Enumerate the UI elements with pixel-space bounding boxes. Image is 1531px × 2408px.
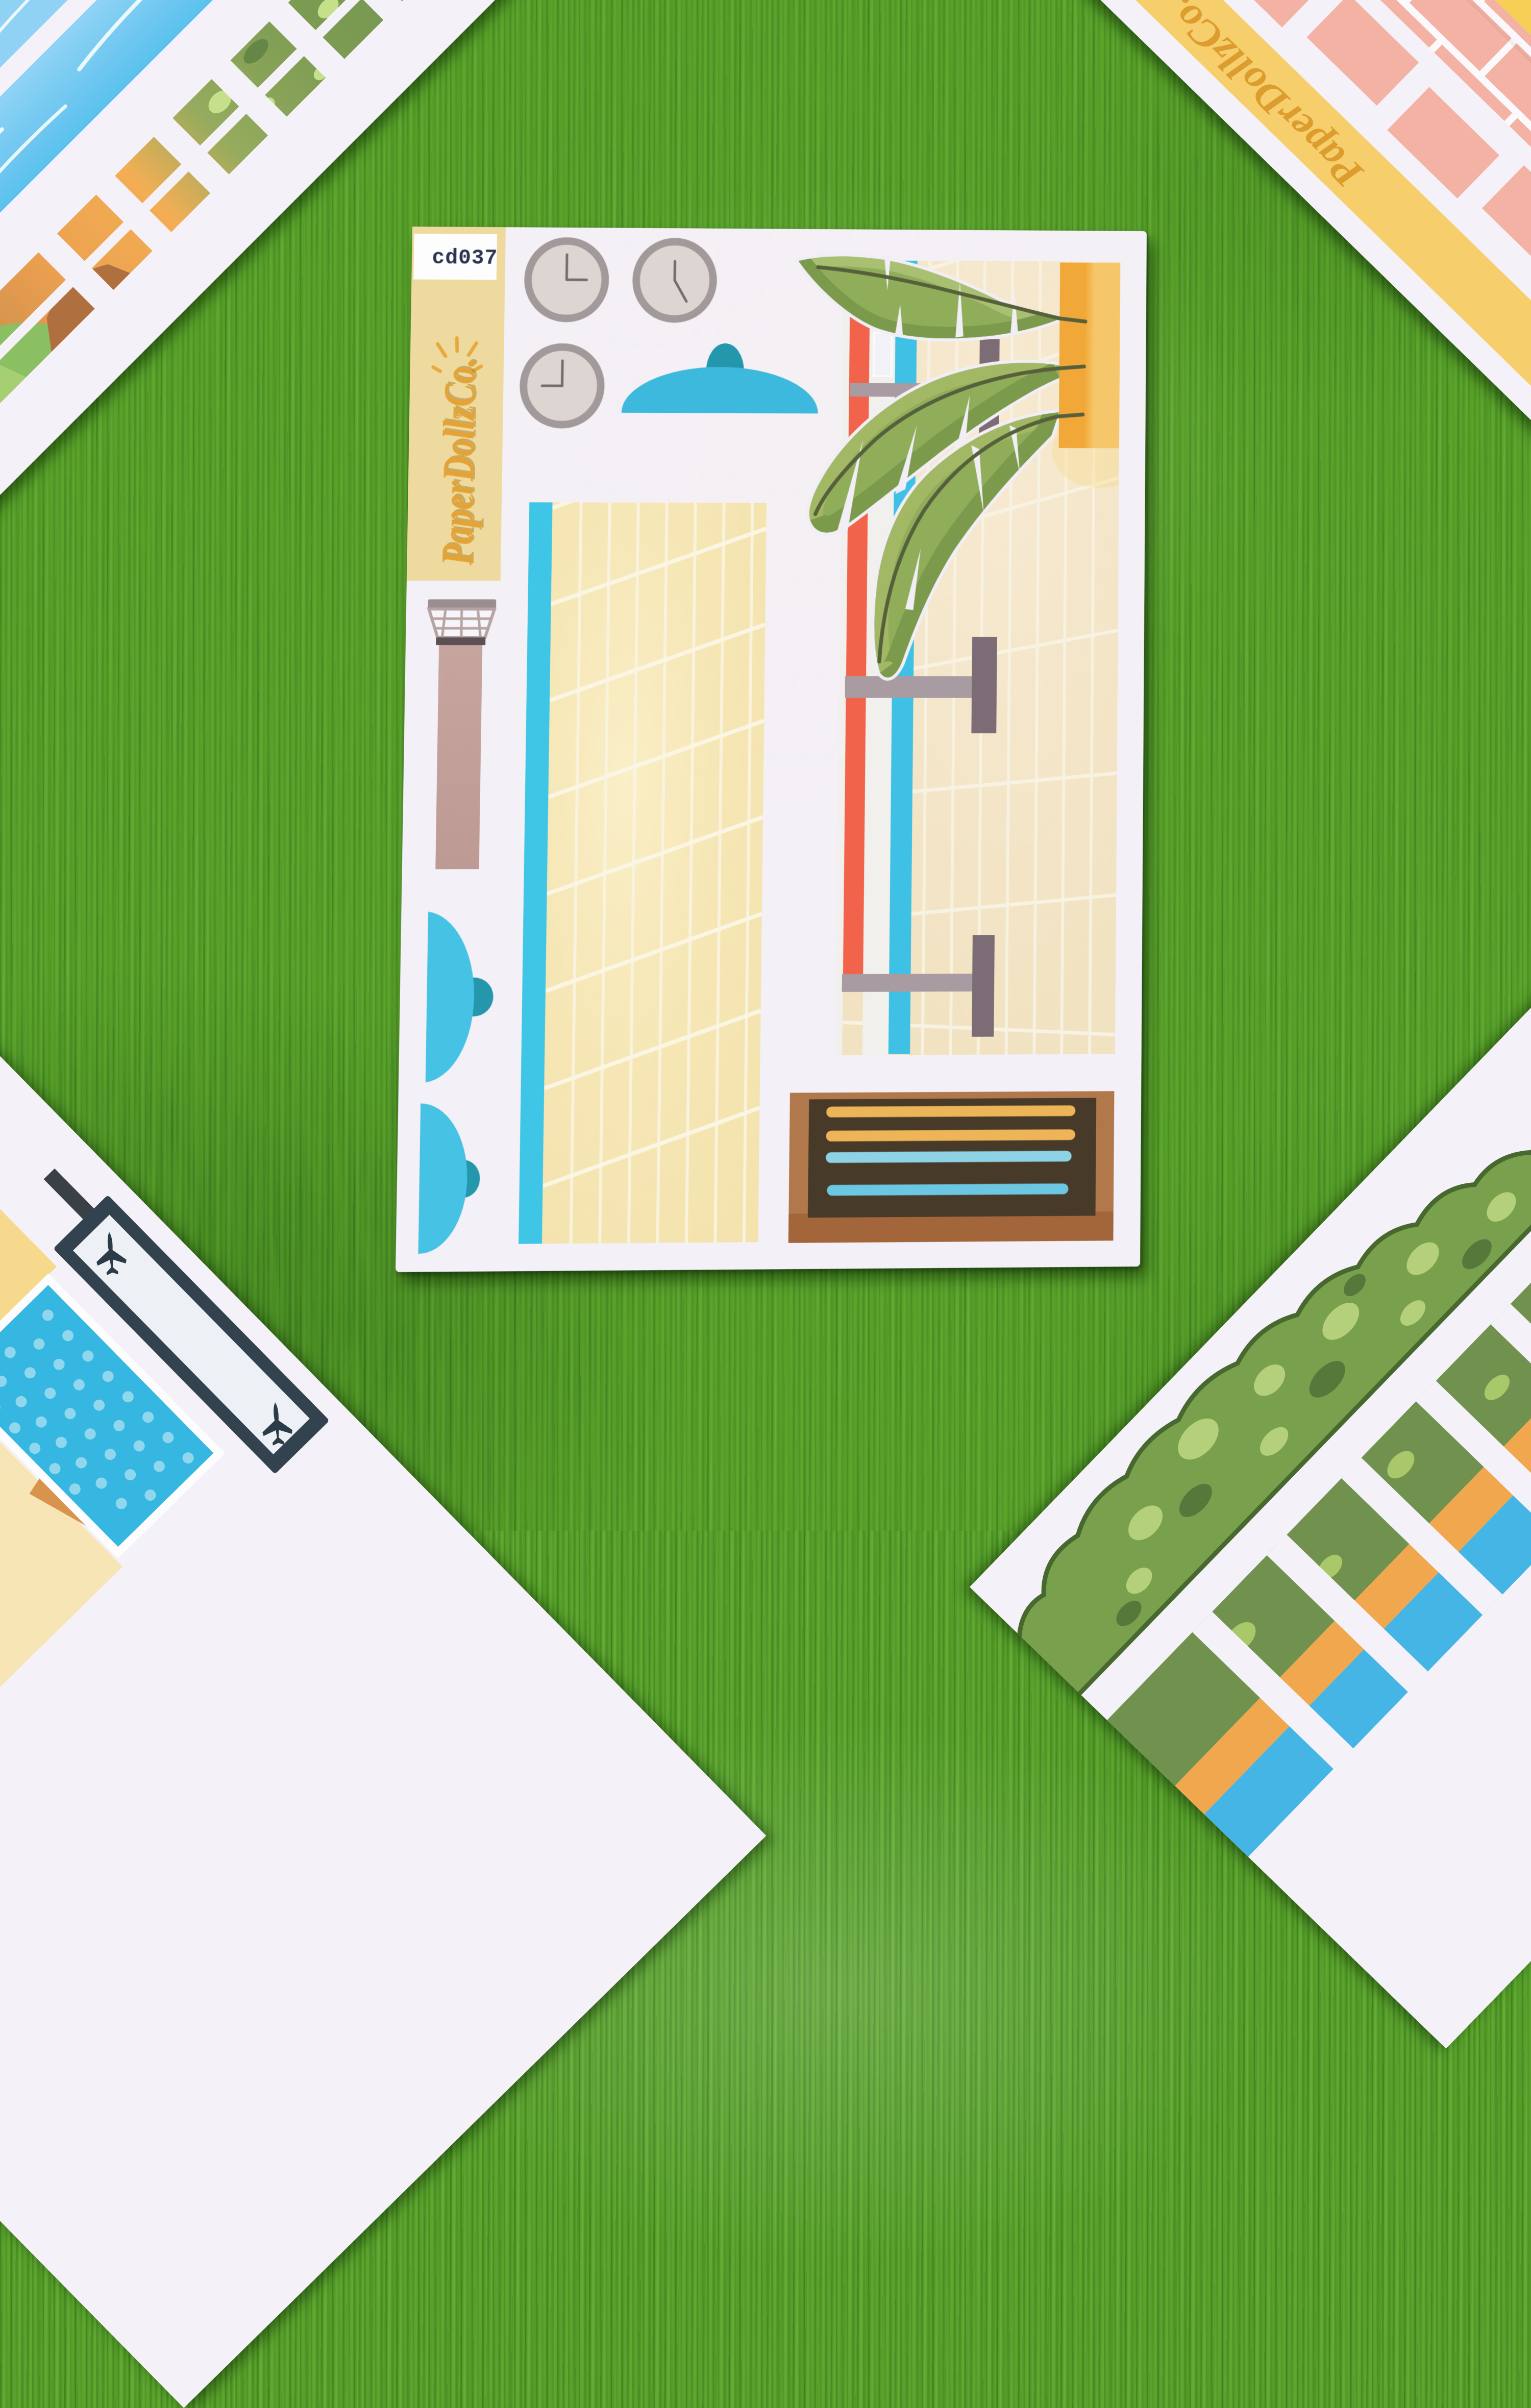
svg-text:PaperDollzCo.: PaperDollzCo. [432, 358, 484, 566]
svg-text:cd037: cd037 [432, 246, 498, 270]
